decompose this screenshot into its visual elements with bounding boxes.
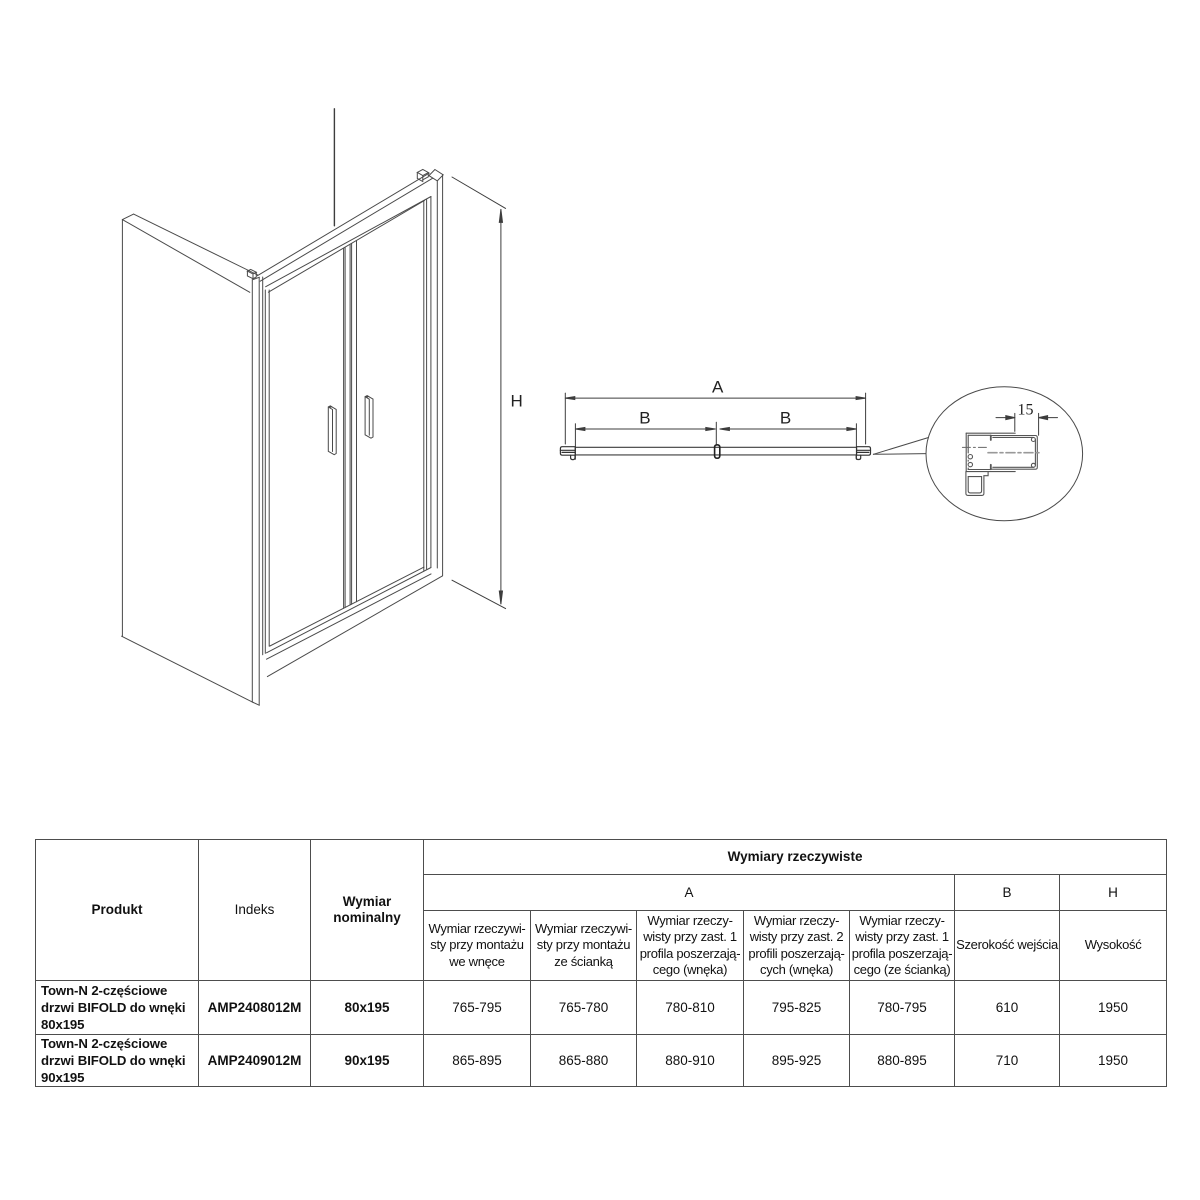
- svg-text:H: H: [510, 392, 522, 411]
- svg-text:15: 15: [1018, 402, 1034, 419]
- svg-text:B: B: [780, 408, 791, 427]
- svg-text:A: A: [712, 377, 724, 396]
- svg-text:B: B: [639, 408, 650, 427]
